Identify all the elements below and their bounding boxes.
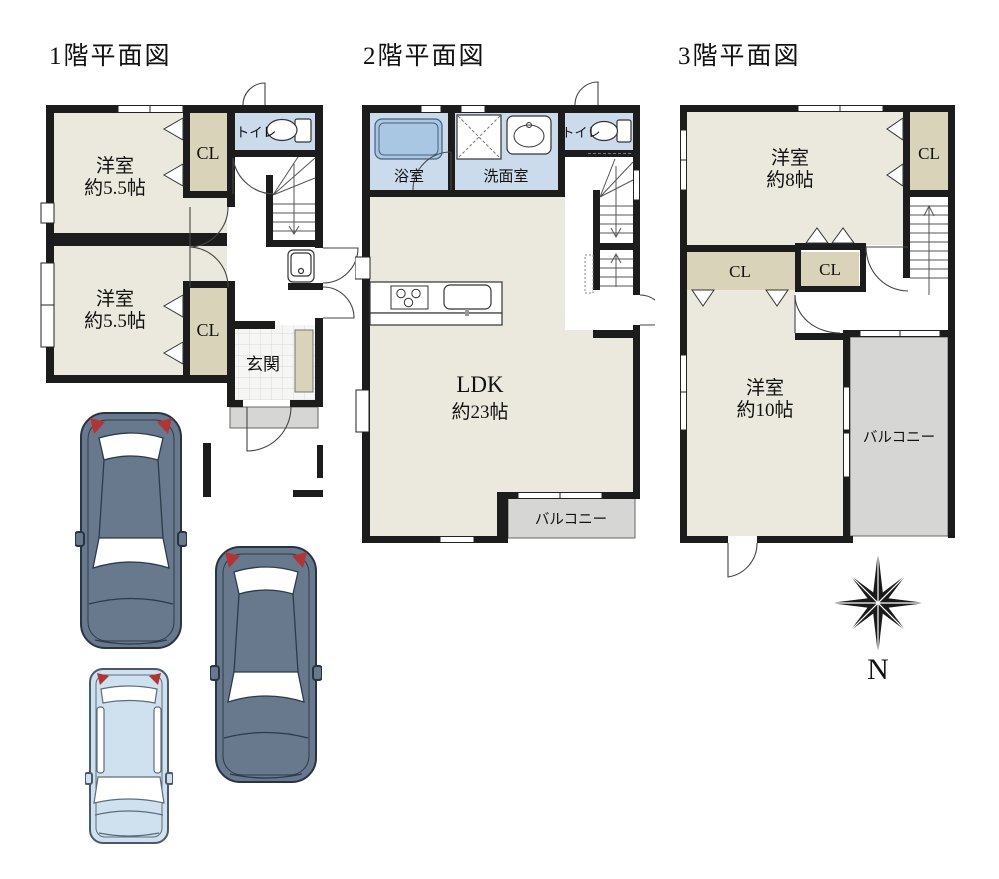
- room10-label-line1: 洋室: [746, 377, 784, 399]
- bathroom-label: 浴室: [394, 168, 424, 185]
- closet-label-1f-b: CL: [196, 320, 219, 340]
- car-light-icon: [85, 665, 173, 847]
- balcony-label-3f: バルコニー: [863, 430, 935, 446]
- bathtub-icon: [375, 119, 442, 159]
- floor2-title: 2階平面図: [363, 36, 486, 72]
- closet-label-3f-b: CL: [819, 260, 841, 279]
- floor-plan-sheet: 1階平面図 2階平面図 3階平面図: [0, 0, 999, 879]
- balcony-label-2f: バルコニー: [535, 512, 607, 528]
- kitchen-counter: [370, 282, 502, 325]
- staircase-1f: [273, 157, 315, 234]
- car-dark-1-icon: [75, 408, 187, 653]
- room-b-label-line1: 洋室: [96, 288, 134, 310]
- compass-north-label: N: [867, 653, 889, 683]
- room10-label-line2: 約10帖: [736, 399, 793, 421]
- room-a-label-line1: 洋室: [96, 155, 134, 177]
- floor3-plan: 洋室 約8帖 CL CL CL 洋室 約10帖 バルコニー: [670, 80, 975, 580]
- floor3-title: 3階平面図: [678, 36, 801, 72]
- parking-markers: [203, 443, 323, 497]
- washer-pan-icon: [457, 115, 501, 159]
- ldk-label-line2: 約23帖: [451, 401, 508, 423]
- room-b-label-line2: 約5.5帖: [84, 310, 146, 332]
- room-a-label-line2: 約5.5帖: [84, 177, 146, 199]
- closet-label-1f-a: CL: [196, 143, 219, 163]
- toilet-label-2f: トイレ: [561, 125, 600, 140]
- floor2-plan: 浴室 洗面室 トイレ LDK 約23帖 バルコニー: [355, 80, 655, 555]
- entrance-label: 玄関: [246, 355, 280, 374]
- ldk-label-line1: LDK: [456, 372, 504, 397]
- car-dark-2-icon: [210, 542, 322, 787]
- entrance-porch: [230, 407, 318, 428]
- washroom-label: 洗面室: [483, 168, 528, 185]
- room8-label-line2: 約8帖: [766, 169, 814, 191]
- sink-icon: [288, 250, 314, 282]
- staircase-3f: [910, 206, 948, 295]
- floor1-title: 1階平面図: [49, 36, 172, 72]
- shoe-cabinet: [295, 330, 313, 392]
- vanity-sink-icon: [507, 116, 551, 154]
- closet-label-3f-a: CL: [729, 262, 751, 281]
- room8-label-line1: 洋室: [771, 147, 809, 169]
- compass-rose-icon: N: [828, 548, 928, 683]
- closet-label-3f-top: CL: [918, 144, 940, 163]
- toilet-label-1f: トイレ: [236, 125, 277, 140]
